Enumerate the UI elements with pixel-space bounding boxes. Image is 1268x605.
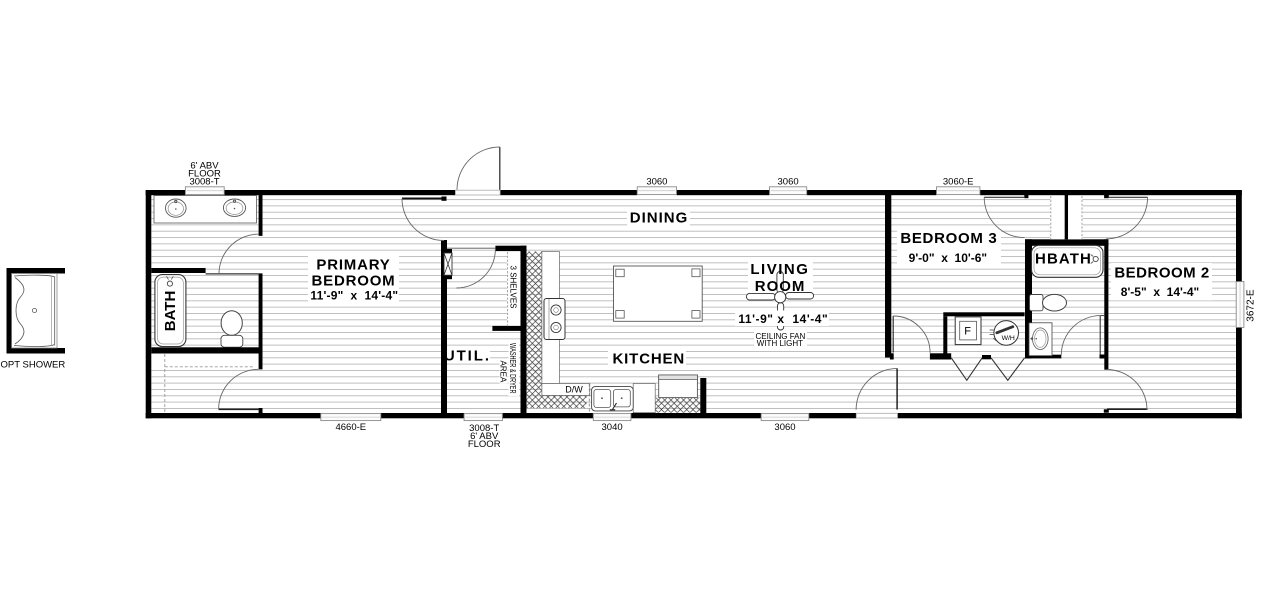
svg-text:BEDROOM: BEDROOM: [312, 273, 396, 290]
svg-text:3060: 3060: [646, 177, 667, 188]
svg-text:BEDROOM 2: BEDROOM 2: [1114, 265, 1209, 282]
svg-text:3 SHELVES: 3 SHELVES: [509, 266, 518, 309]
svg-text:HBATH: HBATH: [1035, 250, 1092, 267]
svg-text:FLOOR: FLOOR: [468, 439, 501, 450]
svg-text:UTIL.: UTIL.: [444, 347, 491, 364]
svg-text:9'-0" x 10'-6": 9'-0" x 10'-6": [909, 251, 987, 265]
svg-text:KITCHEN: KITCHEN: [612, 351, 685, 368]
svg-text:11'-9" x 14'-4": 11'-9" x 14'-4": [738, 312, 828, 326]
svg-text:3040: 3040: [602, 422, 623, 433]
svg-text:D/W: D/W: [565, 385, 583, 395]
svg-text:BATH: BATH: [162, 291, 179, 332]
svg-text:3060: 3060: [774, 422, 795, 433]
svg-text:WITH LIGHT: WITH LIGHT: [757, 339, 803, 348]
svg-text:AREA: AREA: [498, 361, 507, 383]
svg-text:3060: 3060: [778, 177, 799, 188]
svg-text:BEDROOM 3: BEDROOM 3: [900, 230, 997, 247]
svg-text:OPT SHOWER: OPT SHOWER: [1, 360, 66, 371]
svg-text:3060-E: 3060-E: [943, 177, 974, 188]
svg-text:WASHER & DRYER: WASHER & DRYER: [508, 343, 517, 394]
svg-text:3672-E: 3672-E: [1246, 289, 1257, 322]
svg-text:3008-T: 3008-T: [189, 176, 219, 187]
svg-text:W/H: W/H: [1002, 335, 1015, 342]
svg-text:PRIMARY: PRIMARY: [316, 256, 390, 273]
svg-text:8'-5" x 14'-4": 8'-5" x 14'-4": [1121, 285, 1199, 299]
svg-text:F: F: [964, 326, 971, 338]
svg-text:4660-E: 4660-E: [335, 422, 366, 433]
svg-text:11'-9" x 14'-4": 11'-9" x 14'-4": [310, 289, 398, 303]
svg-text:DINING: DINING: [630, 209, 689, 226]
svg-text:ROOM: ROOM: [755, 278, 806, 295]
svg-text:LIVING: LIVING: [750, 261, 809, 278]
